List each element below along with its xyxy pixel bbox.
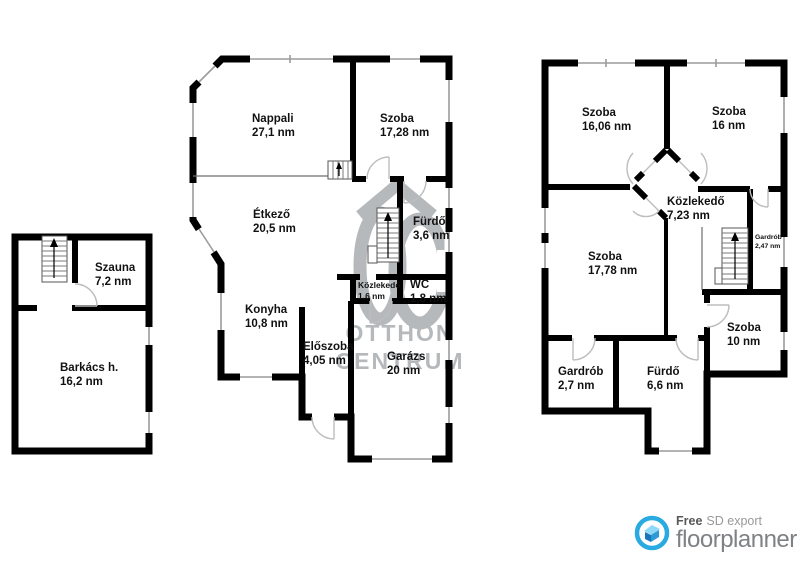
stairs-icon bbox=[715, 228, 748, 284]
room-label-szoba-1728: Szoba 17,28 nm bbox=[380, 112, 429, 140]
room-name: Étkező bbox=[253, 208, 296, 222]
stairs-icon bbox=[42, 236, 67, 282]
stairs-icon bbox=[328, 161, 352, 179]
room-label-konyha: Konyha 10,8 nm bbox=[245, 303, 288, 331]
room-area: 20 nm bbox=[387, 364, 425, 378]
room-area: 1,8 nm bbox=[410, 292, 446, 306]
door-arc bbox=[75, 284, 97, 306]
room-label-gardrob-27: Gardrób 2,7 nm bbox=[558, 365, 603, 393]
room-area: 17,78 nm bbox=[588, 264, 637, 278]
room-label-szoba-1778: Szoba 17,78 nm bbox=[588, 250, 637, 278]
room-area: 3,6 nm bbox=[413, 229, 449, 243]
room-area: 7,2 nm bbox=[95, 275, 135, 289]
room-label-furdo-g: Fürdő 3,6 nm bbox=[413, 215, 449, 243]
room-name: Szauna bbox=[95, 261, 135, 275]
room-label-szauna: Szauna 7,2 nm bbox=[95, 261, 135, 289]
room-area: 10,8 nm bbox=[245, 317, 288, 331]
room-label-szoba-10: Szoba 10 nm bbox=[727, 321, 761, 349]
door-arc bbox=[573, 338, 595, 360]
room-area: 2,47 nm bbox=[755, 243, 782, 252]
floorplanner-logo: FreeSD export floorplanner bbox=[633, 514, 797, 552]
room-label-wc: WC 1,8 nm bbox=[410, 278, 446, 306]
room-area: 16,2 nm bbox=[60, 375, 118, 389]
room-name: Barkács h. bbox=[60, 361, 118, 375]
room-area: 16 nm bbox=[712, 119, 746, 133]
room-label-kozlekedo-g: Közlekedő 1,6 nm bbox=[358, 280, 401, 302]
room-area: 6,6 nm bbox=[647, 379, 683, 393]
room-name: WC bbox=[410, 278, 446, 292]
room-name: Közlekedő bbox=[667, 195, 725, 209]
room-area: 2,7 nm bbox=[558, 379, 603, 393]
room-label-etkezo: Étkező 20,5 nm bbox=[253, 208, 296, 236]
room-name: Közlekedő bbox=[358, 280, 401, 291]
footer-text: FreeSD export floorplanner bbox=[676, 515, 797, 552]
room-name: Gardrób bbox=[755, 234, 782, 243]
room-label-szoba-16: Szoba 16 nm bbox=[712, 105, 746, 133]
room-name: Szoba bbox=[380, 112, 429, 126]
door-arc bbox=[676, 338, 698, 360]
room-label-kozlekedo-u: Közlekedő 7,23 nm bbox=[667, 195, 725, 223]
room-name: Szoba bbox=[588, 250, 637, 264]
room-area: 4,05 nm bbox=[303, 354, 353, 368]
room-area: 27,1 nm bbox=[252, 126, 295, 140]
room-area: 7,23 nm bbox=[667, 209, 725, 223]
room-name: Gardrób bbox=[558, 365, 603, 379]
room-label-szoba-1606: Szoba 16,06 nm bbox=[582, 106, 631, 134]
door-arc bbox=[367, 157, 389, 179]
door-arc bbox=[370, 301, 392, 323]
room-name: Garázs bbox=[387, 350, 425, 364]
floorplan-canvas: OTTHON CENTRUM bbox=[0, 0, 800, 565]
door-arc bbox=[707, 305, 729, 327]
room-name: Szoba bbox=[582, 106, 631, 120]
room-label-barkacs: Barkács h. 16,2 nm bbox=[60, 361, 118, 389]
room-name: Szoba bbox=[712, 105, 746, 119]
room-label-garazs: Garázs 20 nm bbox=[387, 350, 425, 378]
room-name: Előszoba bbox=[303, 340, 353, 354]
room-area: 1,6 nm bbox=[358, 291, 401, 302]
room-name: Szoba bbox=[727, 321, 761, 335]
room-area: 20,5 nm bbox=[253, 222, 296, 236]
door-arc bbox=[404, 181, 426, 203]
room-name: Fürdő bbox=[413, 215, 449, 229]
room-name: Fürdő bbox=[647, 365, 683, 379]
floorplanner-icon bbox=[633, 514, 671, 552]
room-area: 17,28 nm bbox=[380, 126, 429, 140]
room-label-nappali: Nappali 27,1 nm bbox=[252, 112, 295, 140]
door-arc bbox=[679, 153, 707, 184]
door-arc bbox=[627, 153, 655, 184]
room-label-eloszoba: Előszoba 4,05 nm bbox=[303, 340, 353, 368]
brand-name: floorplanner bbox=[676, 528, 797, 552]
door-arc bbox=[633, 198, 659, 217]
room-area: 10 nm bbox=[727, 335, 761, 349]
room-name: Konyha bbox=[245, 303, 288, 317]
room-area: 16,06 nm bbox=[582, 120, 631, 134]
room-name: Nappali bbox=[252, 112, 295, 126]
room-label-gardrob-247: Gardrób 2,47 nm bbox=[755, 234, 782, 251]
stairs-icon bbox=[368, 208, 399, 263]
room-label-furdo-u: Fürdő 6,6 nm bbox=[647, 365, 683, 393]
